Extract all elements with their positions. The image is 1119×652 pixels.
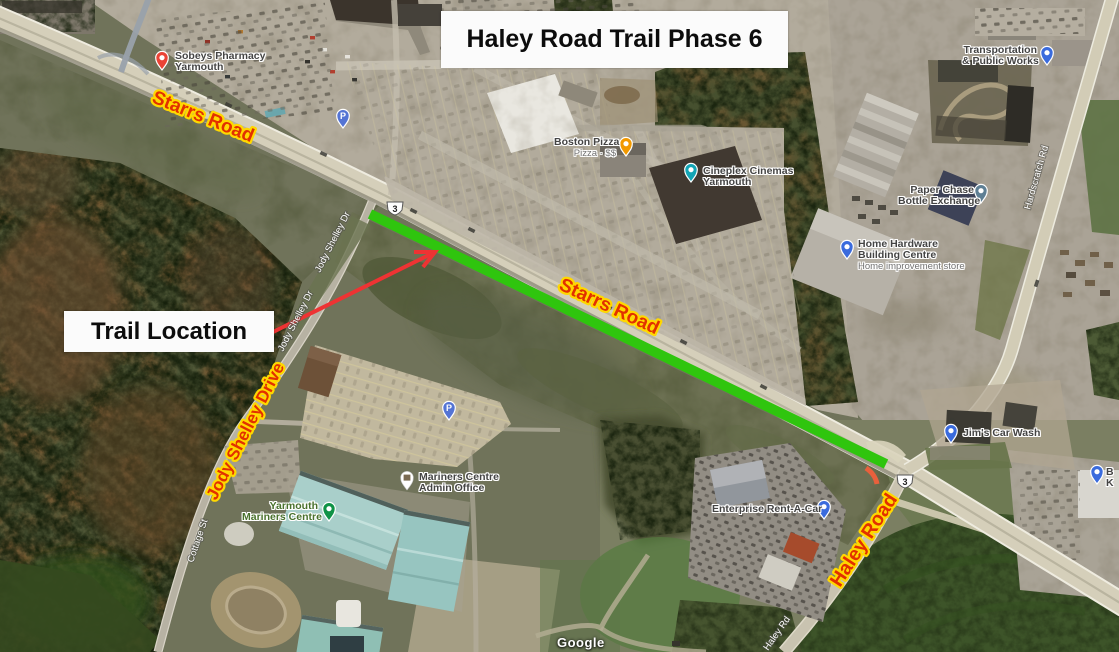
svg-text:3: 3 [392, 204, 397, 214]
svg-text:3: 3 [902, 477, 907, 487]
svg-text:P: P [446, 403, 452, 413]
svg-text:P: P [340, 111, 346, 121]
